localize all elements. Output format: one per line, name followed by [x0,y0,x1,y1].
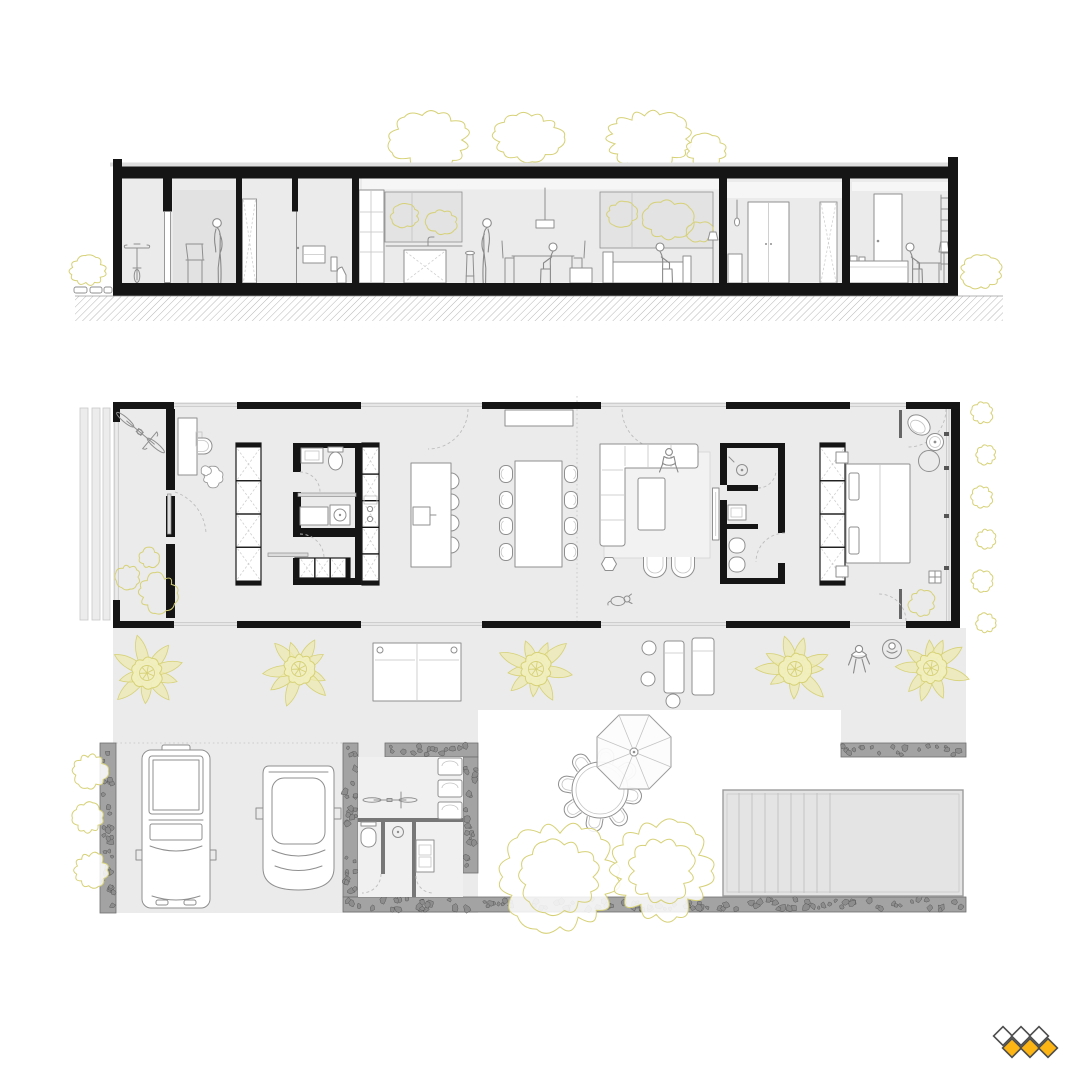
slider-leaf [298,493,356,497]
nightstand [836,452,848,463]
laundry-cabinets [295,558,350,578]
stepping-stones [74,287,112,293]
ground-hatch [75,296,1003,321]
coffee-table [638,478,665,530]
shrub-column-right [971,402,996,633]
tall-kitchen-units [362,443,379,585]
roof-parapet-line [110,163,958,167]
garden-trees [499,819,714,933]
sun-loungers-left [373,643,461,701]
drawing-canvas [0,0,1080,1077]
studio-logo [994,1027,1058,1058]
site-outdoor [72,628,969,933]
wardrobe-entry [236,443,261,585]
outdoor-dining [557,715,671,833]
shrub-left [69,255,106,286]
pickup-truck [136,745,216,908]
living-window [600,192,713,248]
car [256,766,341,890]
logo-diamond-yellow [1003,1039,1058,1058]
slider-leaf [268,553,308,557]
slat-screen [80,408,110,620]
hexagon-table [602,558,617,571]
floor-plan-view [80,396,996,634]
desk [178,418,197,475]
kitchen-window [385,192,462,242]
tree-canopies-behind-roof [388,110,726,171]
slider-leaf [168,494,172,534]
sideboard [505,410,573,426]
office-backdrop [173,190,236,283]
outdoor-shower-room [358,757,463,897]
logo-diamond-white [994,1027,1049,1046]
nightstand [836,566,848,577]
entry-door-leaf [165,212,171,283]
parasol [597,715,671,789]
floor-slab [113,283,958,296]
wardrobe-bedroom [820,443,845,585]
kitchen-island [411,463,459,567]
section-view [69,110,1003,321]
shrub-right [961,255,1002,289]
swimming-pool [723,790,963,896]
architectural-sheet [0,0,1080,1077]
shrubs-garage-side [72,754,109,888]
